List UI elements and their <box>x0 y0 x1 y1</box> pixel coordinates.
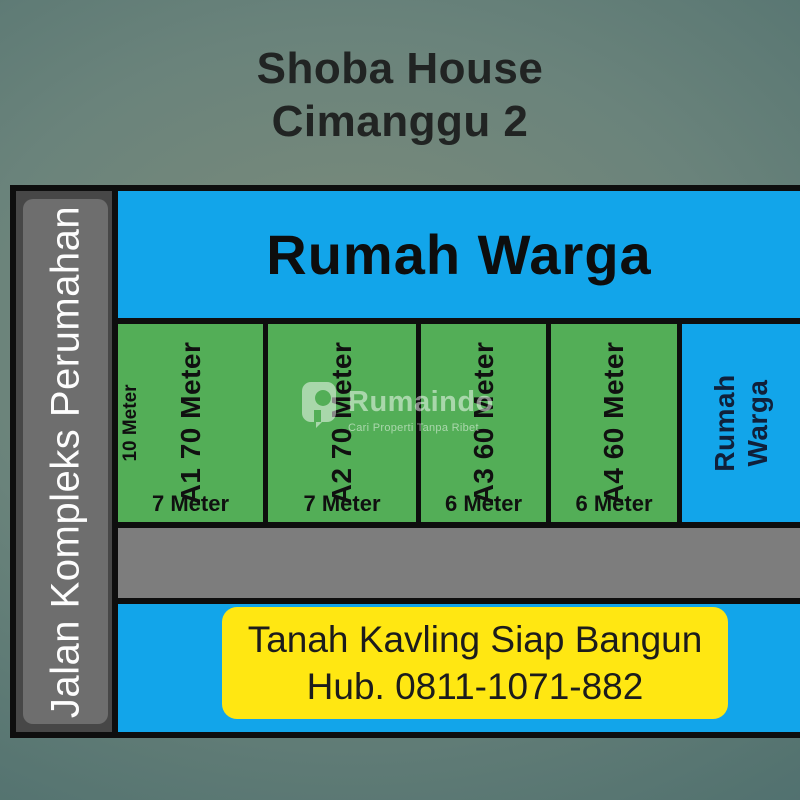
plot-a1-label: A1 70 Meter <box>175 342 207 505</box>
top-neighbor-label: Rumah Warga <box>266 222 651 287</box>
right-neighbor-block: Rumah Warga <box>682 324 800 522</box>
plot-a3-width-label: 6 Meter <box>421 491 546 517</box>
plot-a2-width-label: 7 Meter <box>268 491 416 517</box>
plot-a1-depth-label: 10 Meter <box>120 384 142 461</box>
title-line1: Shoba House <box>0 42 800 95</box>
plots-row: 10 Meter A1 70 Meter 7 Meter A2 70 Meter… <box>118 324 800 528</box>
map-main-area: Rumah Warga 10 Meter A1 70 Meter 7 Meter… <box>118 191 800 732</box>
plot-a1: 10 Meter A1 70 Meter 7 Meter <box>118 324 263 522</box>
banner-phone: Hub. 0811-1071-882 <box>307 663 644 710</box>
plot-a4-width-label: 6 Meter <box>551 491 677 517</box>
plot-a4-label: A4 60 Meter <box>598 342 630 505</box>
page-title: Shoba House Cimanggu 2 <box>0 42 800 148</box>
left-road-label: Jalan Kompleks Perumahan <box>43 205 88 717</box>
access-road <box>118 528 800 598</box>
left-road-strip: Jalan Kompleks Perumahan <box>10 191 118 732</box>
title-line2: Cimanggu 2 <box>0 95 800 148</box>
site-plan-flyer: Shoba House Cimanggu 2 Jalan Kompleks Pe… <box>0 0 800 800</box>
plot-a2-label: A2 70 Meter <box>326 342 358 505</box>
plot-a2: A2 70 Meter 7 Meter <box>268 324 416 522</box>
right-neighbor-label-line1: Rumah <box>708 374 741 471</box>
plot-a3: A3 60 Meter 6 Meter <box>421 324 546 522</box>
site-plan-map: Jalan Kompleks Perumahan Rumah Warga 10 … <box>10 185 800 738</box>
left-road-surface: Jalan Kompleks Perumahan <box>23 199 108 724</box>
plot-a4: A4 60 Meter 6 Meter <box>551 324 677 522</box>
right-neighbor-label: Rumah Warga <box>708 374 774 471</box>
top-neighbor-block: Rumah Warga <box>118 191 800 324</box>
contact-banner: Tanah Kavling Siap Bangun Hub. 0811-1071… <box>222 607 728 719</box>
plot-a3-label: A3 60 Meter <box>468 342 500 505</box>
bottom-block: Tanah Kavling Siap Bangun Hub. 0811-1071… <box>118 598 800 732</box>
plot-a1-width-label: 7 Meter <box>118 491 263 517</box>
banner-headline: Tanah Kavling Siap Bangun <box>248 616 703 663</box>
right-neighbor-label-line2: Warga <box>741 374 774 471</box>
